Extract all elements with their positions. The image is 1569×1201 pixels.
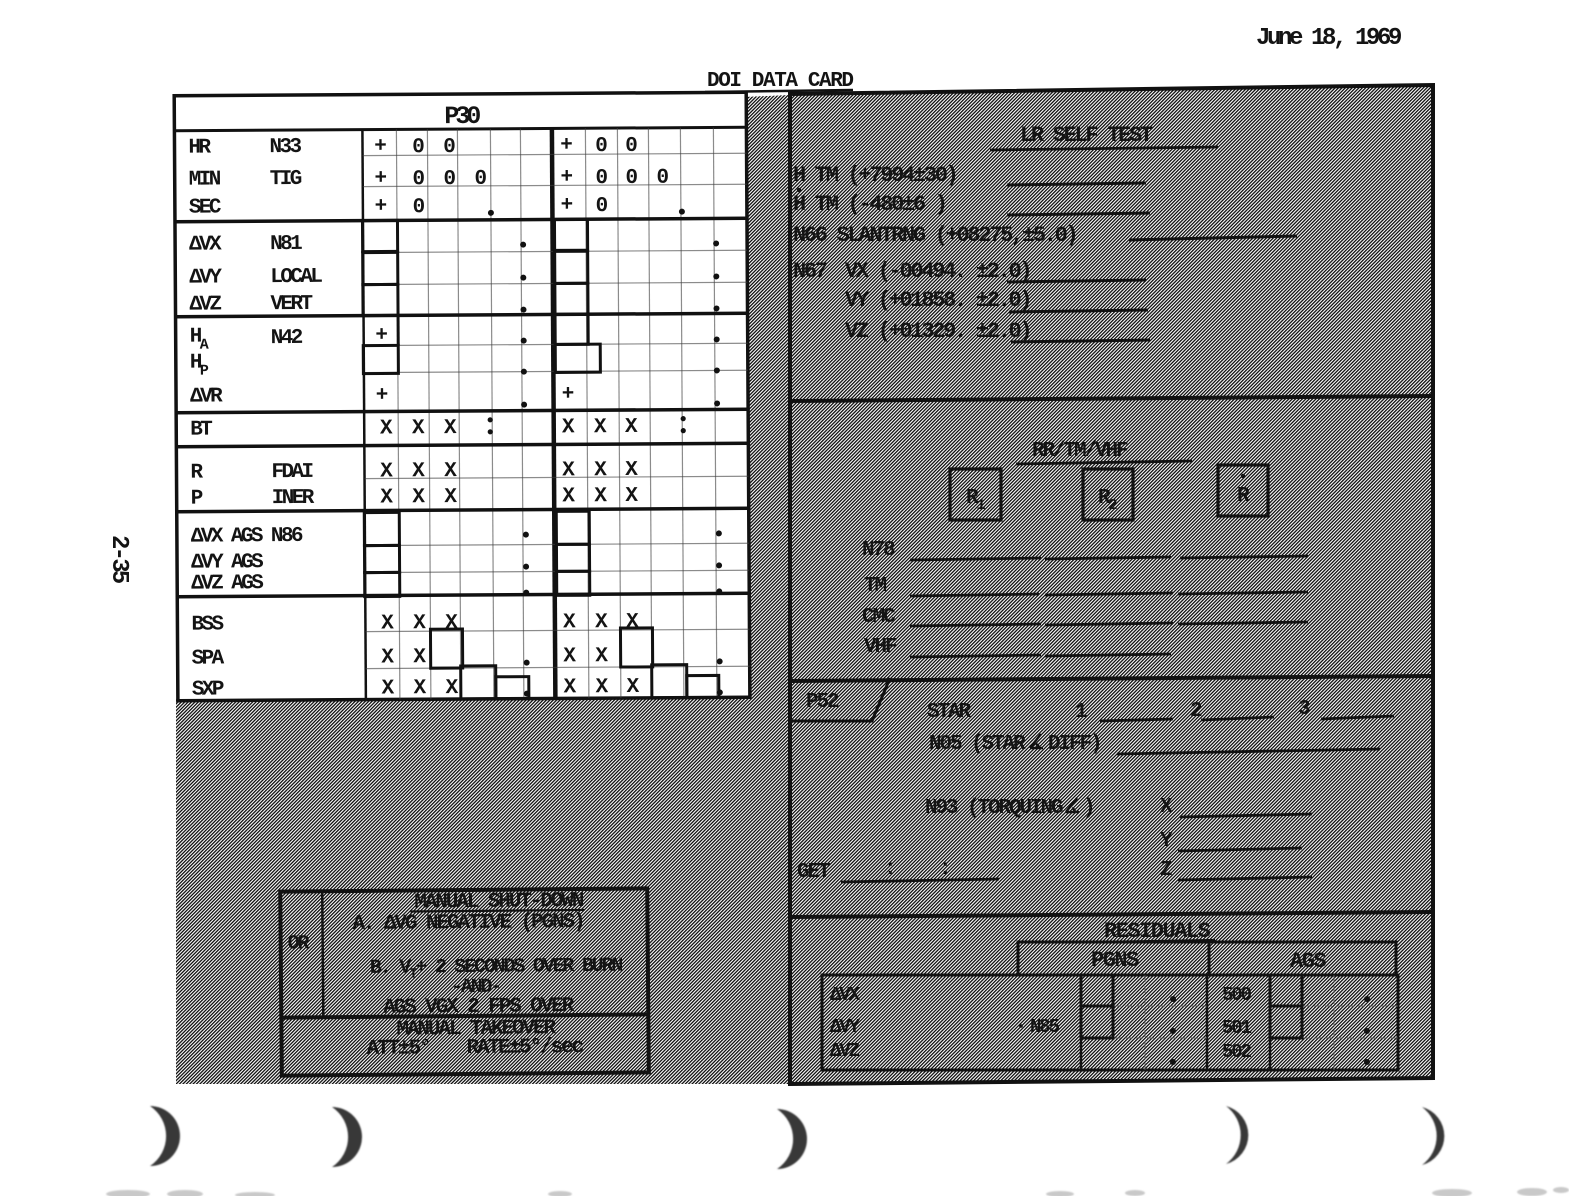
svg-text:N67: N67 <box>793 259 827 284</box>
svg-text:VX (-00494. ±2.0): VX (-00494. ±2.0) <box>845 259 1030 284</box>
svg-text:+: + <box>375 324 387 347</box>
svg-text:N81: N81 <box>270 233 302 256</box>
svg-text:+: + <box>560 134 572 157</box>
svg-text:HR: HR <box>188 137 211 160</box>
svg-text:RATE±5°/sec: RATE±5°/sec <box>466 1036 583 1060</box>
svg-text:GET: GET <box>797 861 830 884</box>
svg-text:500: 500 <box>1222 984 1252 1006</box>
svg-text:CMC: CMC <box>862 606 896 629</box>
svg-text:0: 0 <box>595 167 607 190</box>
svg-text:N33: N33 <box>269 136 301 159</box>
svg-text:0: 0 <box>625 135 637 158</box>
svg-text:0: 0 <box>443 136 455 159</box>
svg-text:TM: TM <box>864 575 887 598</box>
svg-text:N42: N42 <box>271 327 303 350</box>
svg-text:VERT: VERT <box>270 293 312 316</box>
svg-text:A. ΔVG NEGATIVE (PGNS): A. ΔVG NEGATIVE (PGNS) <box>352 911 583 936</box>
svg-text:N05 (STAR: N05 (STAR <box>929 733 1026 756</box>
svg-text:OR: OR <box>288 932 310 955</box>
svg-text:0: 0 <box>656 167 668 190</box>
svg-text:ΔVX AGS N86: ΔVX AGS N86 <box>191 525 303 549</box>
svg-text:N93 (TORQUING: N93 (TORQUING <box>925 797 1063 820</box>
svg-text:ΔVY: ΔVY <box>189 266 222 289</box>
svg-text:+: + <box>375 195 387 218</box>
svg-text:LOCAL: LOCAL <box>270 266 322 289</box>
svg-text:501: 501 <box>1222 1017 1252 1039</box>
svg-text:0: 0 <box>625 167 637 190</box>
svg-text:BSS: BSS <box>191 613 223 636</box>
svg-text:2-35: 2-35 <box>105 535 132 584</box>
svg-text:H TM (+7994±30): H TM (+7994±30) <box>793 163 957 188</box>
svg-text:ΔVR: ΔVR <box>190 385 223 408</box>
svg-text:INER: INER <box>272 487 315 510</box>
svg-text:SEC: SEC <box>189 196 222 219</box>
svg-text:+: + <box>374 167 386 190</box>
svg-text:P30: P30 <box>444 102 480 131</box>
svg-text:N85: N85 <box>1030 1016 1060 1038</box>
svg-text:SXP: SXP <box>192 678 224 701</box>
svg-text:DIFF): DIFF) <box>1048 733 1101 756</box>
svg-text:0: 0 <box>595 135 607 158</box>
svg-text:P52: P52 <box>806 691 839 714</box>
svg-text:VZ (+01329. ±2.0): VZ (+01329. ±2.0) <box>845 319 1030 344</box>
svg-text:H TM (-480±6 ): H TM (-480±6 ) <box>793 192 946 217</box>
svg-text:AGS VGX 2 FPS OVER: AGS VGX 2 FPS OVER <box>383 995 575 1020</box>
svg-text:Z: Z <box>1160 859 1172 882</box>
svg-text:STAR: STAR <box>927 701 972 724</box>
svg-text:+: + <box>374 135 386 158</box>
svg-text:VHF: VHF <box>864 636 897 659</box>
svg-text:June 18, 1969: June 18, 1969 <box>1256 25 1401 52</box>
svg-text:0: 0 <box>596 195 608 218</box>
svg-text:N78: N78 <box>862 539 895 562</box>
svg-text:ΔVY AGS: ΔVY AGS <box>191 551 263 574</box>
svg-text:PGNS: PGNS <box>1091 948 1139 973</box>
svg-text:+: + <box>560 166 572 189</box>
svg-text:ΔVZ: ΔVZ <box>830 1040 860 1062</box>
svg-text:N66 SLANTRNG (+08275,±5.0): N66 SLANTRNG (+08275,±5.0) <box>793 223 1076 248</box>
svg-text:TIG: TIG <box>270 168 302 191</box>
svg-text:LR SELF TEST: LR SELF TEST <box>1020 123 1153 148</box>
svg-text:ΔVX: ΔVX <box>830 984 861 1006</box>
svg-text:0: 0 <box>412 168 424 191</box>
svg-text:2: 2 <box>1190 700 1202 723</box>
svg-text:RR/TM/VHF: RR/TM/VHF <box>1032 440 1128 463</box>
svg-text::: : <box>939 858 950 881</box>
svg-text:0: 0 <box>474 168 486 191</box>
svg-text::: : <box>884 858 895 881</box>
svg-text:0: 0 <box>443 168 455 191</box>
svg-text:1: 1 <box>1075 701 1087 724</box>
svg-text:502: 502 <box>1222 1041 1252 1063</box>
svg-text:ΔVZ AGS: ΔVZ AGS <box>191 572 263 595</box>
svg-text:BT: BT <box>190 419 212 442</box>
svg-text:+: + <box>376 384 388 407</box>
svg-text:ΔVZ: ΔVZ <box>189 293 221 316</box>
svg-text:FDAI: FDAI <box>271 461 312 484</box>
svg-text:ΔVY: ΔVY <box>830 1016 861 1038</box>
svg-text:+: + <box>561 194 573 217</box>
svg-text:): ) <box>1083 797 1094 820</box>
svg-text:VY (+01858. ±2.0): VY (+01858. ±2.0) <box>845 288 1030 313</box>
svg-text:ATT±5°: ATT±5° <box>367 1037 430 1061</box>
svg-text:3: 3 <box>1298 698 1310 721</box>
svg-text:0: 0 <box>412 136 424 159</box>
svg-text:ΔVX: ΔVX <box>189 233 222 256</box>
svg-text:SPA: SPA <box>192 647 225 670</box>
svg-text:0: 0 <box>413 196 425 219</box>
svg-text:+: + <box>562 383 574 406</box>
svg-text:MIN: MIN <box>189 168 221 191</box>
svg-text:AGS: AGS <box>1290 949 1326 974</box>
